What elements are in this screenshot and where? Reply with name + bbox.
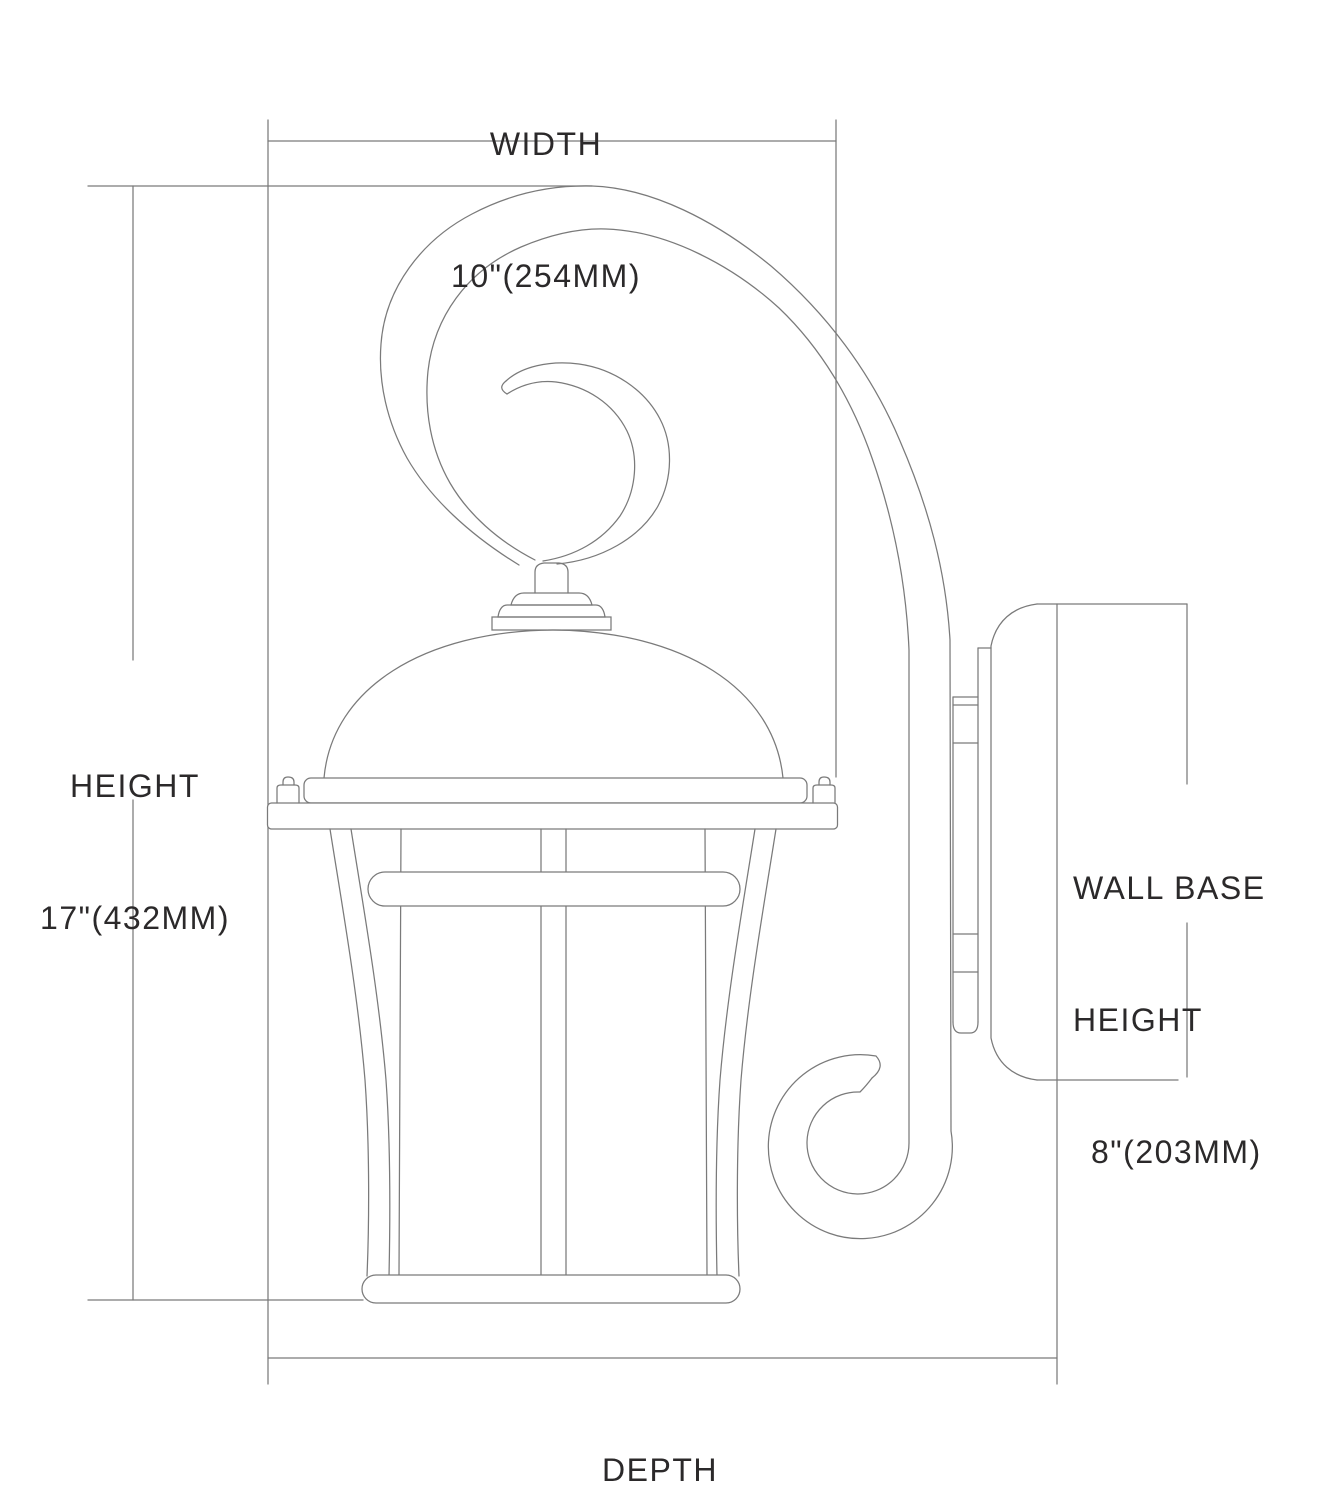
scroll-volute-inner-curve (507, 382, 635, 561)
depth-dimension-label-block: DEPTH 13"(330MM) (460, 1360, 860, 1500)
cap-nut-right (813, 785, 835, 803)
height-dimension-value: 17"(432MM) (0, 896, 270, 940)
cap-nut-left-dome (283, 777, 294, 785)
width-dimension-value: 10"(254MM) (346, 254, 746, 298)
cage-bottom-bar (362, 1275, 740, 1303)
wallbase-dimension-label-line1: WALL BASE (1073, 866, 1266, 910)
depth-dimension-label: DEPTH (460, 1448, 860, 1492)
dome-roof (324, 630, 783, 778)
wallbase-cover-profile (991, 604, 1037, 1080)
cage-middle-bar (368, 872, 740, 906)
lantern-top (268, 563, 838, 829)
cage-strap-right-outer (737, 829, 776, 1276)
width-dimension-label-block: WIDTH 10"(254MM) (346, 34, 746, 386)
cap-nut-left (277, 785, 299, 803)
roof-rim-band (304, 778, 807, 803)
wallbase-dimension-value: 8"(203MM) (1073, 1130, 1266, 1174)
finial-post (535, 563, 568, 593)
roof-drip-band (268, 803, 838, 829)
bracket-strip-bottom-cap (953, 1022, 978, 1033)
height-dimension-label: HEIGHT (0, 764, 270, 808)
collar-step-1 (511, 593, 592, 605)
scroll-volute-outer-curve (506, 363, 670, 564)
lantern-cage (330, 829, 776, 1303)
dimension-diagram: WIDTH 10"(254MM) HEIGHT 17"(432MM) WALL … (0, 0, 1326, 1500)
wallbase-dimension-label-block: WALL BASE HEIGHT 8"(203MM) (1073, 778, 1266, 1262)
collar-step-2 (498, 605, 605, 617)
height-dimension-label-block: HEIGHT 17"(432MM) (0, 676, 270, 1028)
collar-step-3 (492, 617, 611, 630)
wallbase-dimension-label-line2: HEIGHT (1073, 998, 1266, 1042)
width-dimension-label: WIDTH (346, 122, 746, 166)
cage-strap-left-outer (330, 829, 369, 1276)
cap-nut-right-dome (819, 777, 830, 785)
